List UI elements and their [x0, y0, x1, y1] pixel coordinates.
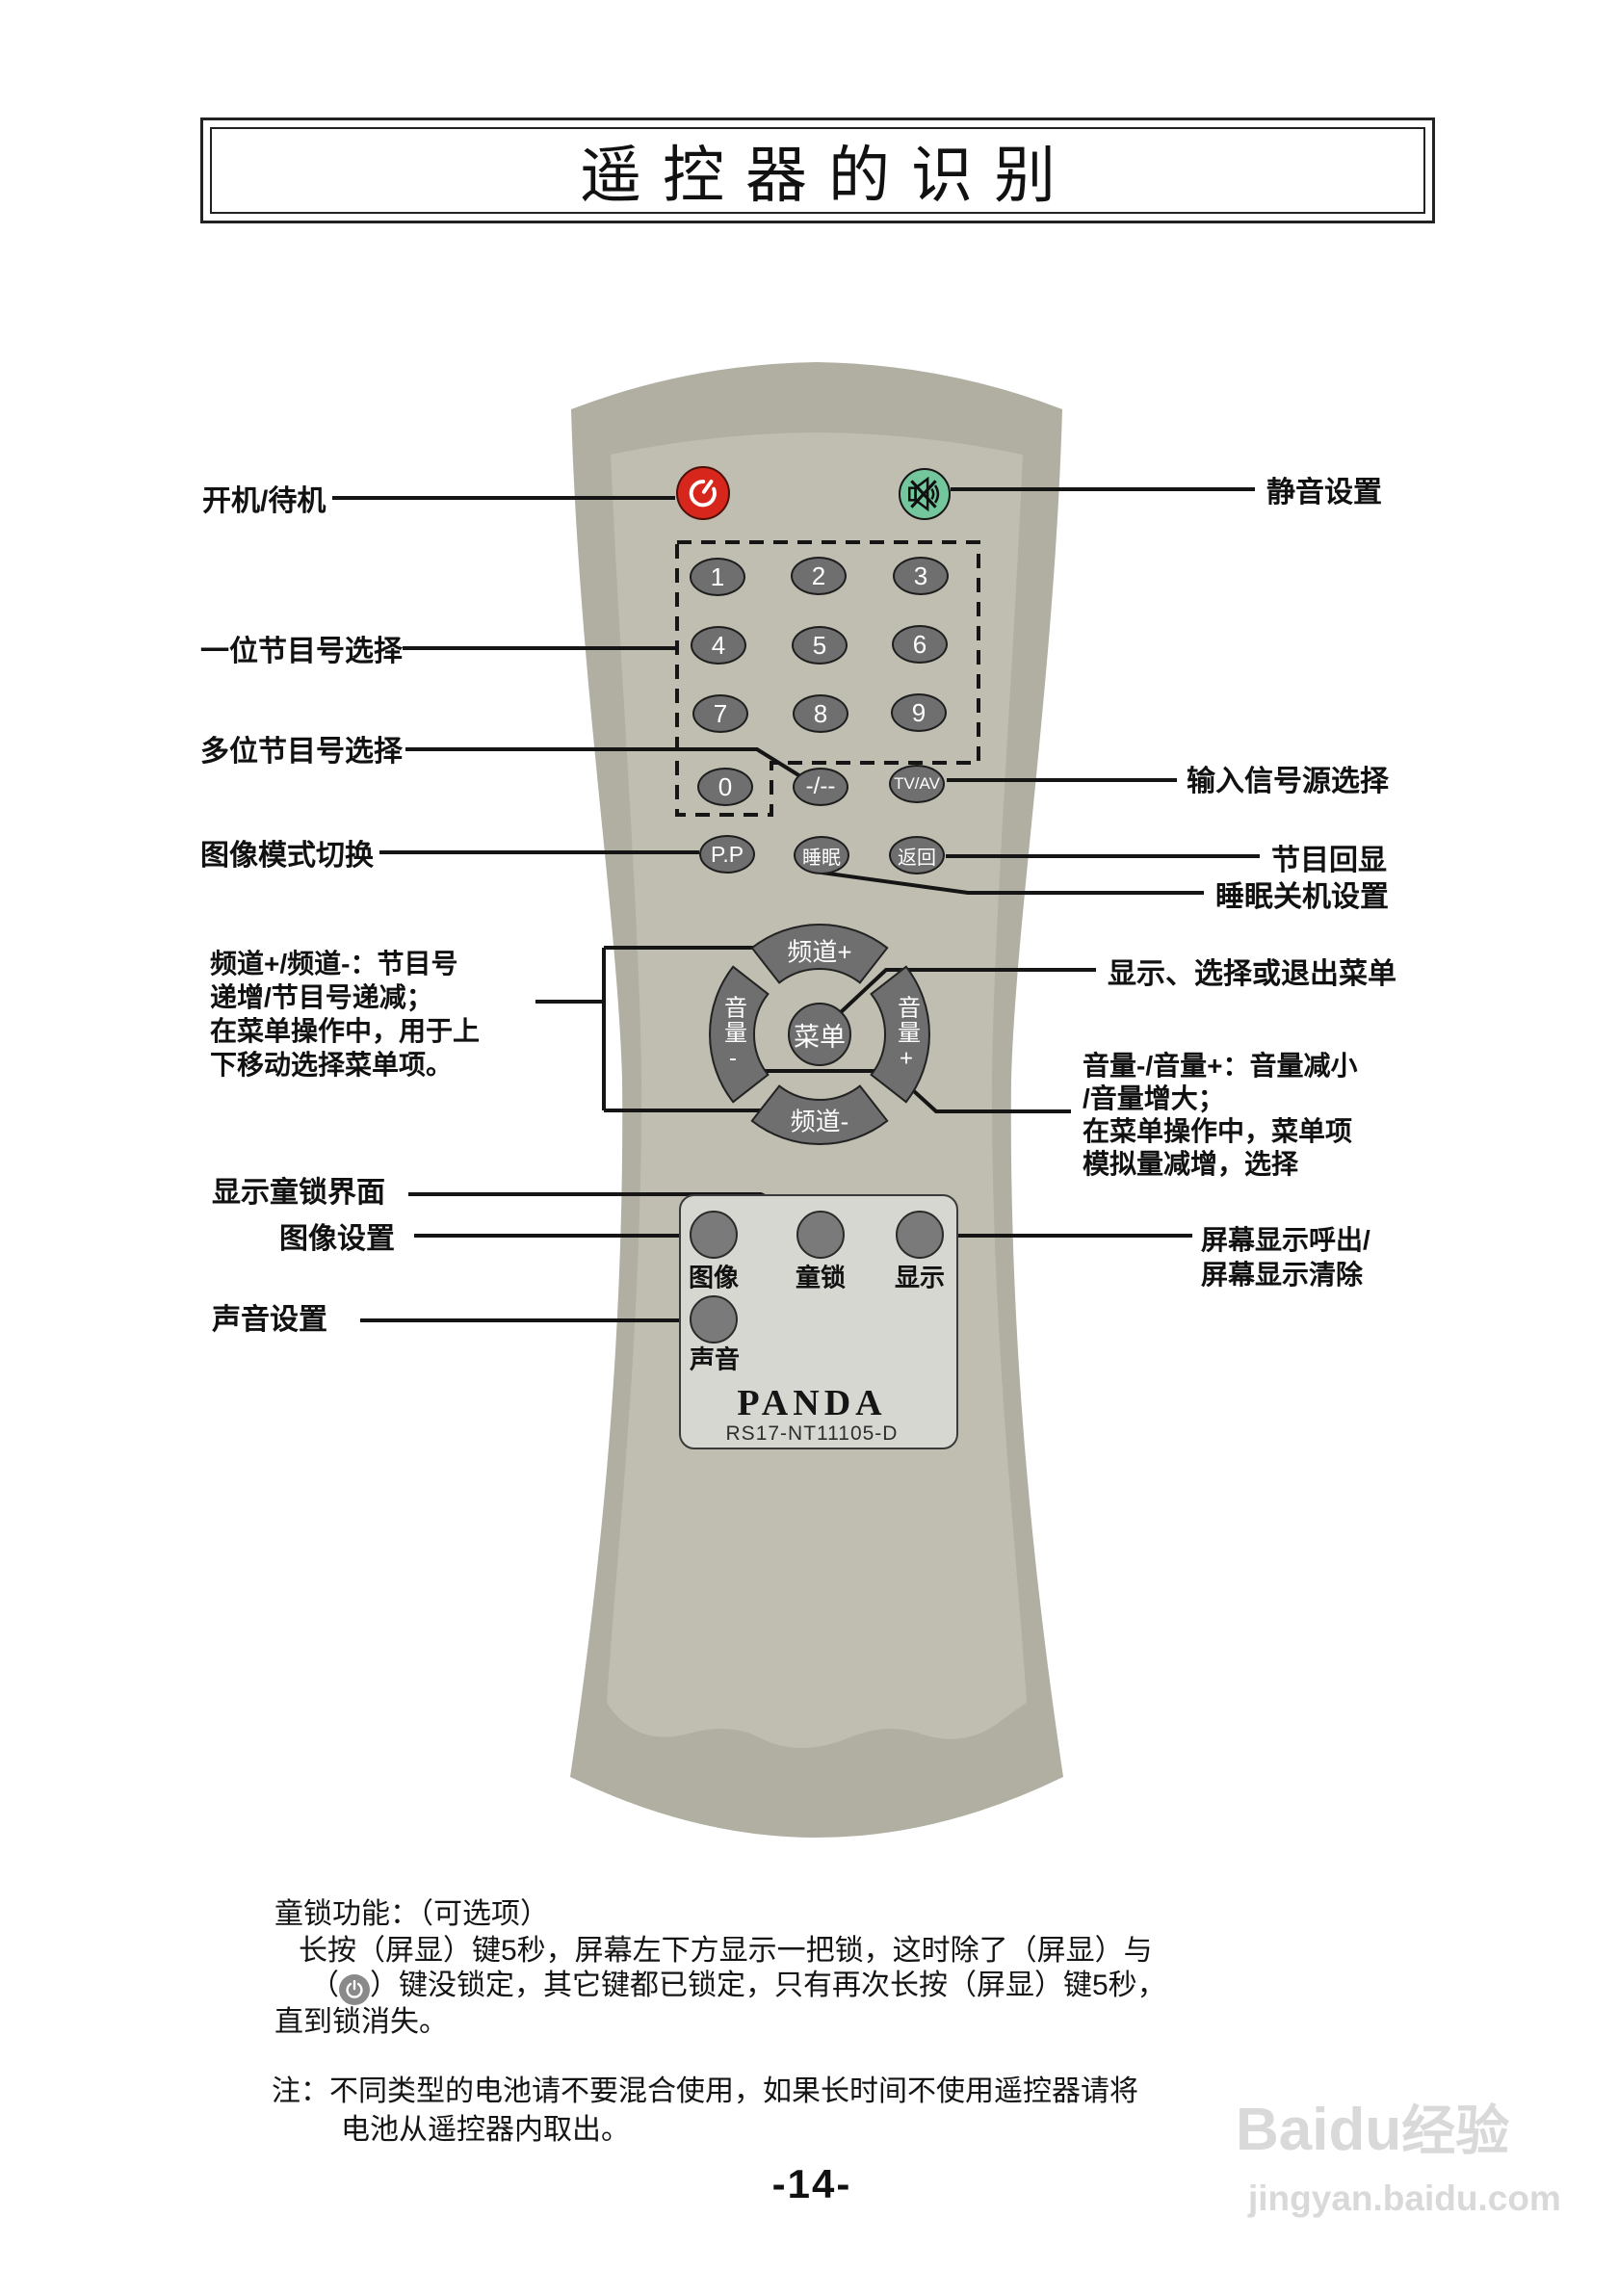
childlock-note-line3-post: ）键没锁定，其它键都已锁定，只有再次长按（屏显）键5秒，	[370, 1970, 1166, 2001]
display-button-label: 显示	[895, 1259, 945, 1294]
digit-6-button[interactable]: 6	[892, 625, 948, 664]
label-volume-block: 音量-/音量+：音量减小 /音量增大； 在菜单操作中，菜单项 模拟量减增，选择	[1083, 1050, 1357, 1181]
label-multi-digit: 多位节目号选择	[200, 727, 403, 770]
battery-note-line1: 注：不同类型的电池请不要混合使用，如果长时间不使用遥控器请将	[272, 2067, 1138, 2109]
volume-down-label: 音量-	[717, 996, 750, 1074]
label-single-digit: 一位节目号选择	[200, 627, 403, 669]
label-picture-set: 图像设置	[279, 1214, 395, 1257]
display-button[interactable]	[896, 1211, 944, 1259]
sleep-button[interactable]: 睡眠	[794, 836, 849, 874]
label-volume-line: /音量增大；	[1083, 1083, 1357, 1115]
page-number: -14-	[772, 2161, 852, 2207]
sound-button[interactable]	[690, 1295, 738, 1344]
label-channel-line: 递增/节目号递减；	[210, 980, 480, 1014]
picture-button[interactable]	[690, 1211, 738, 1259]
label-input-source: 输入信号源选择	[1187, 757, 1389, 799]
label-channel-line: 频道+/频道-：节目号	[210, 947, 480, 980]
multi-digit-button[interactable]: -/--	[793, 768, 848, 806]
watermark-brand: Baidu	[1236, 2097, 1401, 2163]
picture-button-label: 图像	[689, 1259, 739, 1294]
digit-5-button[interactable]: 5	[792, 626, 848, 665]
label-power: 开机/待机	[202, 477, 326, 519]
digit-0-button[interactable]: 0	[697, 768, 753, 806]
label-childlock: 显示童锁界面	[212, 1168, 385, 1211]
power-icon	[686, 476, 720, 510]
digit-8-button[interactable]: 8	[793, 694, 848, 733]
model-number: RS17-NT11105-D	[726, 1422, 899, 1446]
page-title: 遥控器的识别	[559, 126, 1077, 215]
channel-up-label: 频道+	[787, 933, 851, 969]
digit-9-button[interactable]: 9	[891, 693, 947, 732]
childlock-note-line4: 直到锁消失。	[274, 1997, 448, 2040]
label-channel-line: 下移动选择菜单项。	[210, 1048, 480, 1082]
childlock-button[interactable]	[796, 1211, 845, 1259]
label-picture-mode: 图像模式切换	[200, 831, 374, 874]
tv-av-button[interactable]: TV/AV	[889, 765, 945, 803]
channel-down-label: 频道-	[791, 1103, 849, 1138]
title-box-inner: 遥控器的识别	[210, 127, 1425, 214]
childlock-button-label: 童锁	[796, 1259, 846, 1294]
label-volume-line: 在菜单操作中，菜单项	[1083, 1115, 1357, 1148]
menu-button[interactable]: 菜单	[788, 1003, 851, 1066]
watermark-logo: Baidu经验	[1236, 2088, 1509, 2166]
battery-note-line2: 电池从遥控器内取出。	[341, 2105, 630, 2148]
title-box: 遥控器的识别	[200, 117, 1435, 223]
label-sound-set: 声音设置	[212, 1295, 327, 1338]
label-sleep: 睡眠关机设置	[1215, 873, 1389, 915]
label-osd-block: 屏幕显示呼出/ 屏幕显示清除	[1201, 1223, 1370, 1292]
manual-page: 遥控器的识别 开机/待机 一位节目号选择 多位节目号选择 图像模式切换 频道+/…	[0, 0, 1618, 2296]
digit-4-button[interactable]: 4	[691, 626, 746, 665]
sound-button-label: 声音	[690, 1341, 740, 1376]
label-osd-line: 屏幕显示呼出/	[1201, 1223, 1370, 1258]
digit-7-button[interactable]: 7	[692, 694, 748, 733]
pp-button[interactable]: P.P	[699, 835, 755, 874]
watermark-url: jingyan.baidu.com	[1248, 2179, 1561, 2219]
digit-2-button[interactable]: 2	[791, 557, 847, 595]
label-mute: 静音设置	[1266, 468, 1382, 510]
volume-up-label: 音量+	[890, 996, 924, 1074]
mute-icon	[904, 474, 945, 514]
digit-3-button[interactable]: 3	[893, 557, 949, 595]
return-button[interactable]: 返回	[889, 836, 945, 874]
label-channel-line: 在菜单操作中，用于上	[210, 1014, 480, 1048]
label-volume-line: 模拟量减增，选择	[1083, 1148, 1357, 1181]
mute-button[interactable]	[899, 468, 951, 520]
power-button[interactable]	[676, 466, 730, 520]
label-menu: 显示、选择或退出菜单	[1108, 950, 1396, 992]
label-channel-block: 频道+/频道-：节目号 递增/节目号递减； 在菜单操作中，用于上 下移动选择菜单…	[210, 947, 480, 1082]
brand-logo: PANDA	[737, 1382, 886, 1424]
watermark-suffix: 经验	[1401, 2100, 1509, 2161]
digit-1-button[interactable]: 1	[690, 558, 745, 596]
label-volume-line: 音量-/音量+：音量减小	[1083, 1050, 1357, 1083]
label-osd-line: 屏幕显示清除	[1201, 1258, 1370, 1292]
